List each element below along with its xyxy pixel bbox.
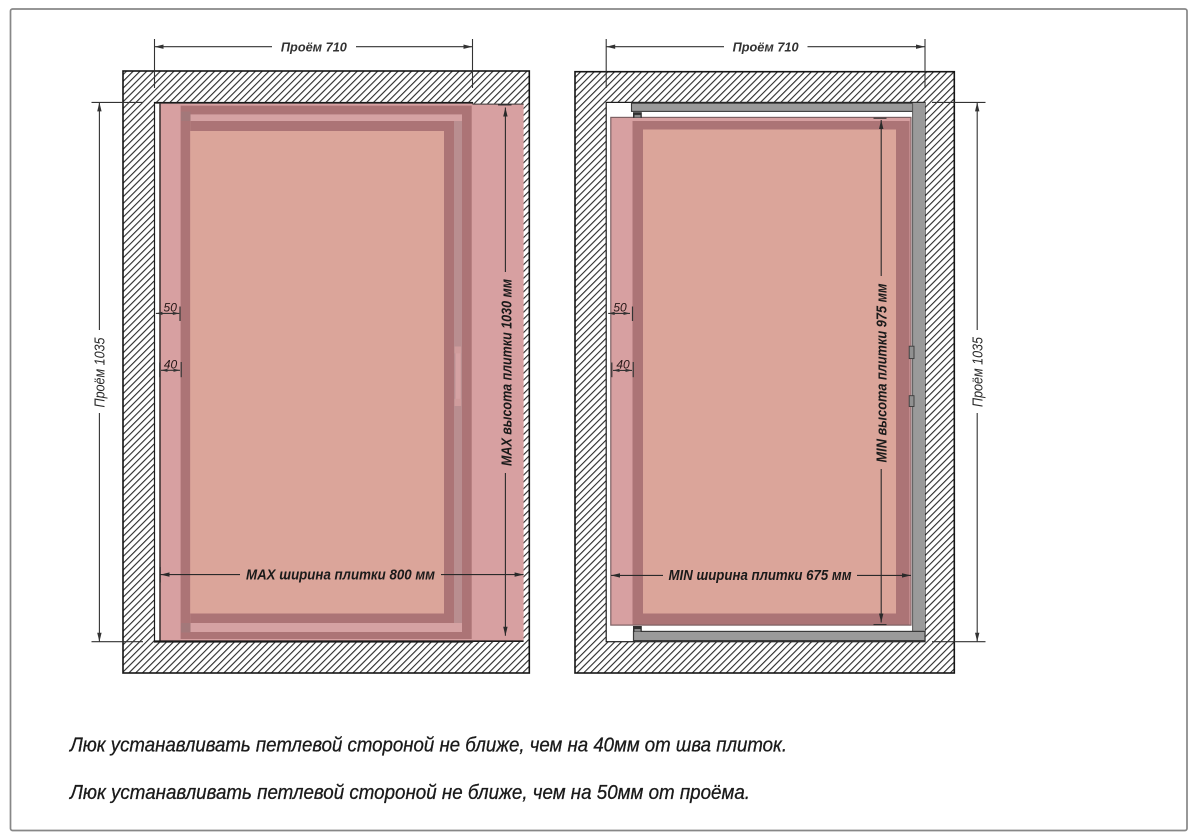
svg-text:Проём 1035: Проём 1035 bbox=[93, 337, 109, 408]
svg-text:Проём 1035: Проём 1035 bbox=[971, 336, 987, 407]
svg-text:MIN ширина плитки 675 мм: MIN ширина плитки 675 мм bbox=[669, 567, 852, 584]
svg-text:MIN высота плитки 975 мм: MIN высота плитки 975 мм bbox=[875, 283, 891, 462]
svg-text:Люк устанавливать петлевой сто: Люк устанавливать петлевой стороной не б… bbox=[68, 782, 750, 804]
svg-text:MAX ширина плитки 800 мм: MAX ширина плитки 800 мм bbox=[246, 566, 435, 583]
svg-text:MAX высота плитки 1030 мм: MAX высота плитки 1030 мм bbox=[500, 279, 516, 466]
svg-text:Люк устанавливать петлевой сто: Люк устанавливать петлевой стороной не б… bbox=[68, 735, 787, 757]
svg-text:50: 50 bbox=[164, 300, 178, 314]
svg-text:Проём 710: Проём 710 bbox=[281, 41, 347, 55]
svg-text:Проём 710: Проём 710 bbox=[733, 41, 799, 55]
